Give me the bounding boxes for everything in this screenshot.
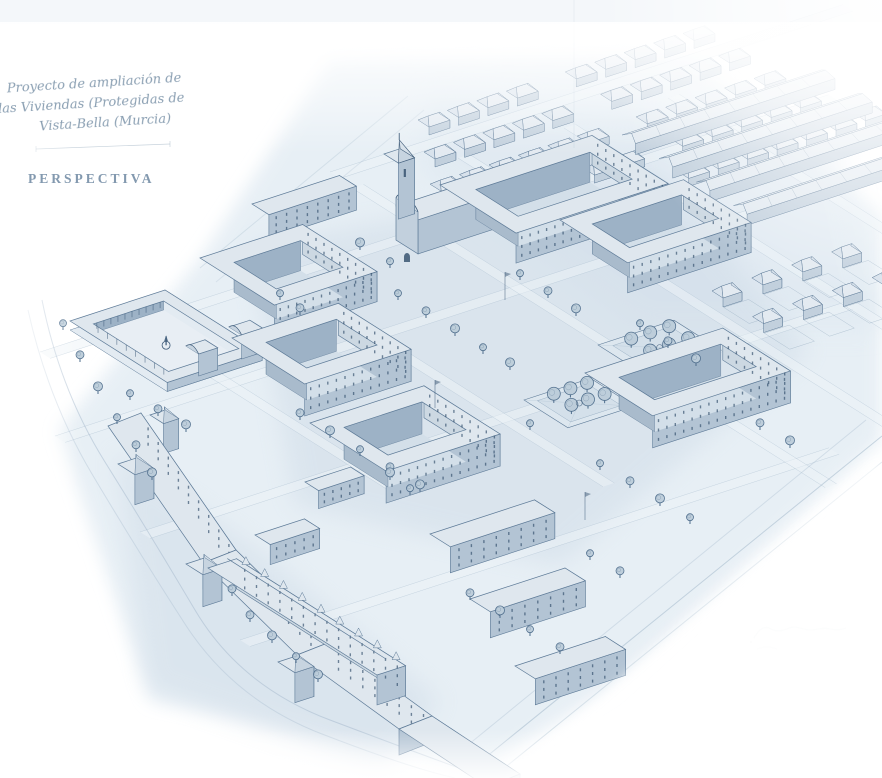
title-block: Proyecto de ampliación de las Viviendas …	[6, 69, 186, 140]
bottom-fade	[0, 730, 882, 778]
perspectiva-stamp: PERSPECTIVA	[28, 171, 155, 187]
scanned-drawing-page: Proyecto de ampliación de las Viviendas …	[0, 0, 882, 778]
corner-fade	[600, 0, 882, 300]
left-fade	[0, 140, 80, 720]
